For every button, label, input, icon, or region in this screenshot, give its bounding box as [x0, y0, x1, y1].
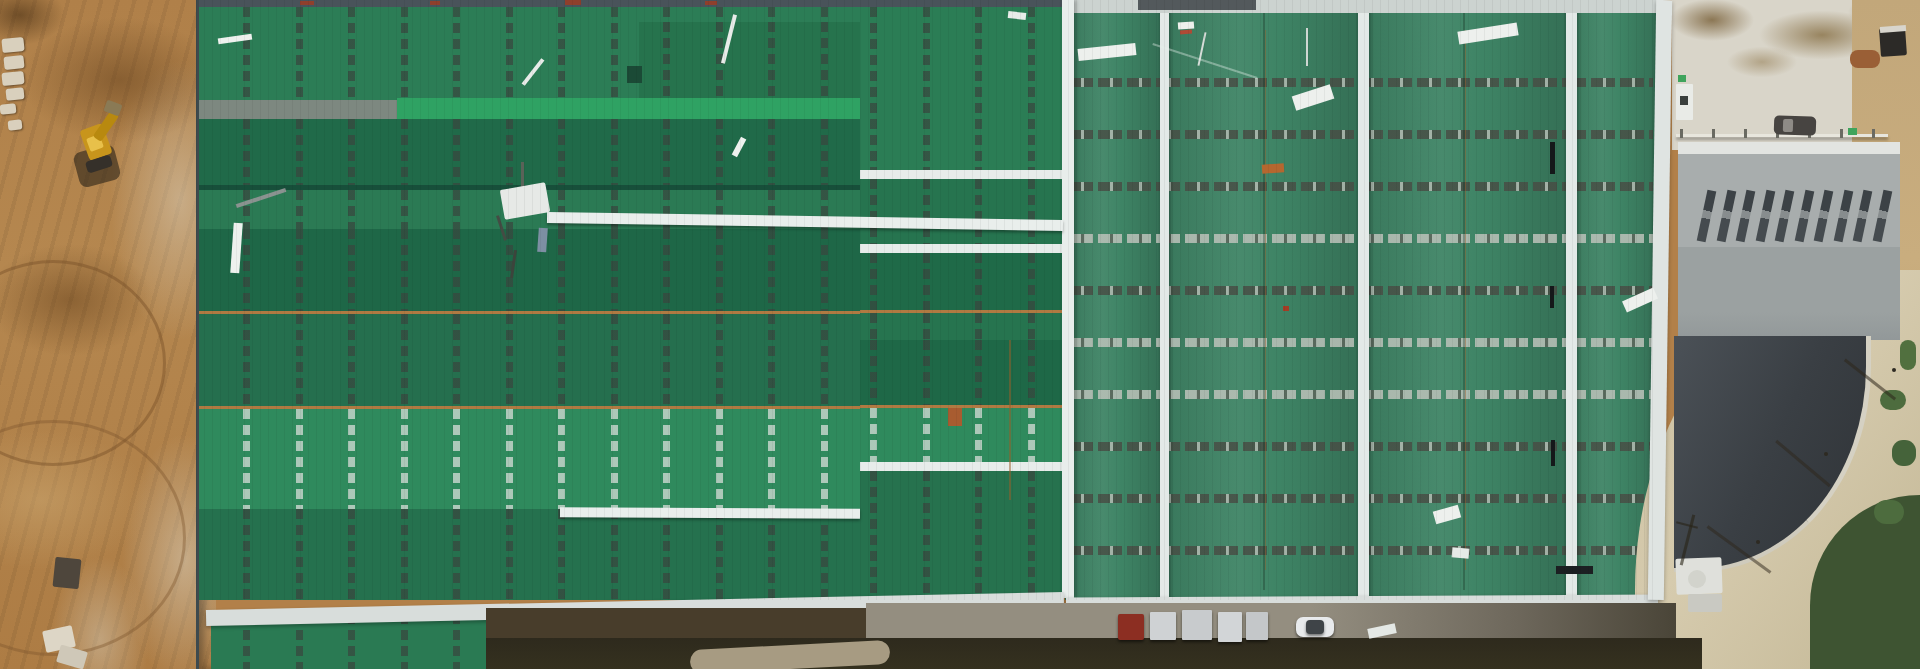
white-plank: [1433, 505, 1462, 525]
white-plank: [1292, 84, 1335, 111]
roof-gap-mark: [1550, 142, 1555, 174]
suv-car: [1774, 115, 1817, 135]
pole-shadow: [1775, 440, 1831, 487]
aerial-photo-scene: Aerial drone view of industrial warehous…: [0, 0, 1920, 669]
white-label-tag: [1178, 21, 1194, 29]
equipment-leg: [510, 250, 517, 278]
material-stack: [1218, 612, 1242, 642]
red-label-mark: [1180, 30, 1192, 35]
pole-shadow: [1707, 525, 1772, 573]
mulch-pile: [1850, 50, 1880, 68]
bush: [1900, 340, 1916, 370]
bush: [1874, 500, 1904, 524]
thin-pole: [1306, 28, 1308, 66]
roof-frame-piece: [1138, 0, 1256, 10]
material-stack: [1246, 612, 1268, 640]
white-plank: [1367, 623, 1396, 639]
ground-road-curve: [690, 640, 891, 669]
roof-gap-mark: [1551, 440, 1555, 466]
object-layer: [0, 0, 1920, 669]
loading-dock: [1688, 594, 1722, 612]
pad-structure-door: [1680, 96, 1688, 105]
rust-patch: [1262, 163, 1285, 174]
pad-green-marker: [1678, 75, 1686, 82]
white-plank: [1457, 22, 1518, 44]
rust-dot: [1283, 306, 1289, 311]
roof-gap-mark: [1550, 286, 1554, 308]
rust-patch: [948, 408, 962, 426]
suv-windshield: [1783, 119, 1793, 132]
rooftop-tank: [1688, 570, 1706, 588]
scratch-line: [1152, 43, 1257, 79]
power-pole-crossarm: [1676, 521, 1698, 528]
red-edge-mark: [300, 1, 314, 5]
dark-panel-patch: [627, 66, 642, 83]
power-pole: [1824, 452, 1828, 456]
debris-stick: [236, 188, 287, 208]
white-plank: [218, 34, 253, 45]
white-plank: [1078, 43, 1137, 61]
excavator-bucket: [103, 100, 122, 117]
red-edge-mark: [705, 1, 717, 5]
power-pole: [1892, 368, 1896, 372]
pad-green-marker: [1848, 128, 1857, 135]
red-edge-mark: [430, 1, 440, 5]
white-plank: [1622, 288, 1658, 313]
power-pole: [1756, 540, 1760, 544]
white-plank: [732, 137, 747, 157]
debris-dark-block: [53, 557, 82, 590]
equipment-tag: [537, 228, 548, 253]
white-plank: [721, 14, 737, 63]
material-stack: [1150, 612, 1176, 640]
bush: [1892, 440, 1916, 466]
material-stack: [1182, 610, 1212, 640]
equipment-box: [500, 182, 551, 220]
white-plank: [230, 223, 242, 274]
white-plank: [1008, 11, 1027, 20]
white-plank: [522, 58, 545, 86]
white-car-roof: [1306, 620, 1324, 634]
debris-white-block: [56, 644, 88, 669]
white-plank: [1452, 547, 1470, 558]
roof-corner-shadow: [1556, 566, 1593, 574]
red-edge-mark: [565, 0, 581, 5]
pole-shadow: [1844, 359, 1896, 401]
red-box-truck: [1118, 614, 1144, 640]
